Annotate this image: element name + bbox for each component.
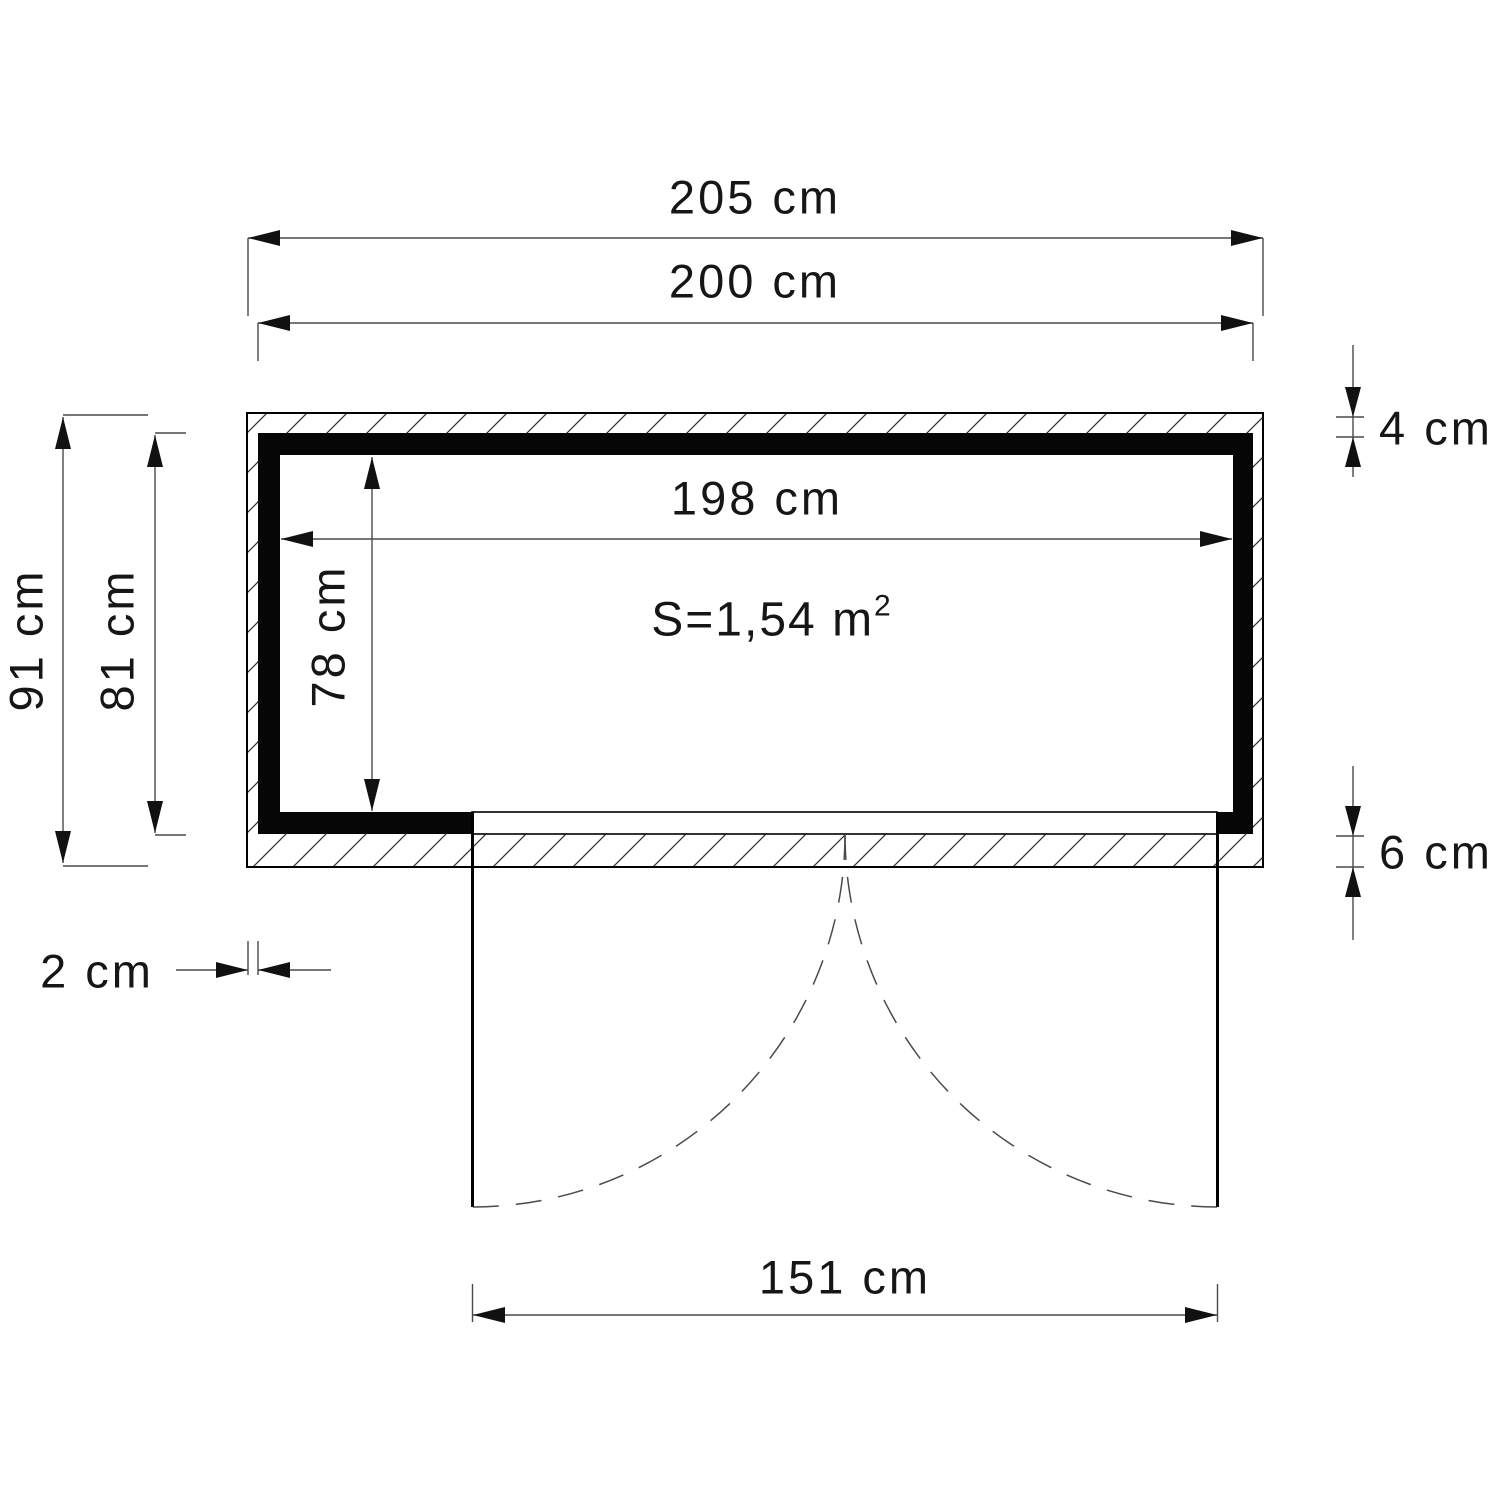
floor-plan-canvas: 205 cm 200 cm 198 cm S=1,54 m2 91 cm 81 … bbox=[0, 0, 1500, 1500]
floor-plan-drawing bbox=[0, 0, 1500, 1500]
dim-wall-thickness-4 bbox=[1336, 345, 1364, 477]
dim-cladding-width-200 bbox=[258, 315, 1253, 361]
label-floor-area: S=1,54 m2 bbox=[651, 592, 890, 645]
dim-cladding-thickness-2 bbox=[176, 941, 331, 978]
dim-inner-depth-78 bbox=[364, 457, 380, 811]
label-floor-area-value: S=1,54 m bbox=[651, 594, 874, 647]
door-swing-arc-left bbox=[472, 834, 845, 1207]
door-swing-arc-right bbox=[845, 834, 1218, 1207]
label-floor-area-exponent: 2 bbox=[874, 590, 891, 623]
label-wall-thickness-top: 4 cm bbox=[1379, 405, 1493, 452]
door-opening-strip bbox=[472, 812, 1217, 834]
label-wall-thickness-bottom: 6 cm bbox=[1379, 829, 1493, 876]
label-cladding-depth: 81 cm bbox=[94, 569, 141, 712]
label-door-width: 151 cm bbox=[759, 1254, 931, 1301]
dim-wall-thickness-6 bbox=[1336, 766, 1364, 940]
label-cladding-width: 200 cm bbox=[669, 258, 841, 305]
dim-cladding-depth-81 bbox=[147, 433, 186, 835]
label-inner-depth: 78 cm bbox=[305, 565, 352, 708]
label-outer-width: 205 cm bbox=[669, 174, 841, 221]
label-inner-width: 198 cm bbox=[671, 475, 843, 522]
dim-inner-width-198 bbox=[281, 531, 1232, 547]
label-outer-depth: 91 cm bbox=[3, 569, 50, 712]
label-cladding-thickness: 2 cm bbox=[40, 948, 154, 995]
